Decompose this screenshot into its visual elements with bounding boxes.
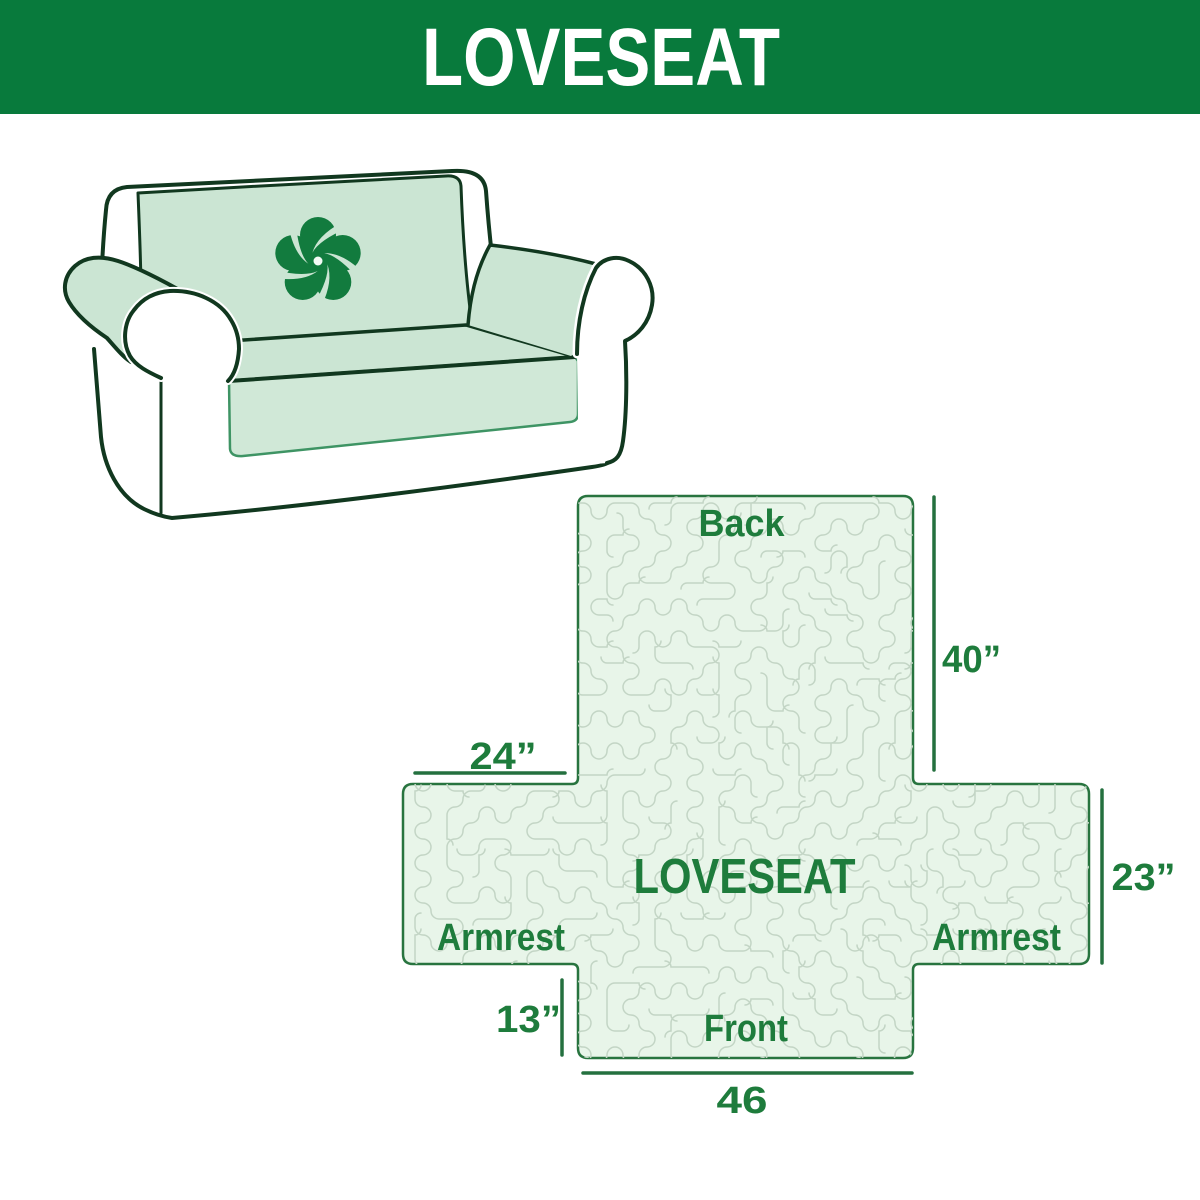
svg-text:LOVESEAT: LOVESEAT xyxy=(634,850,856,904)
svg-text:23”: 23” xyxy=(1112,857,1176,899)
svg-text:Armrest: Armrest xyxy=(437,917,565,959)
svg-text:Back: Back xyxy=(699,503,786,545)
svg-text:Armrest: Armrest xyxy=(932,917,1061,959)
svg-text:Front: Front xyxy=(704,1008,788,1050)
svg-text:46: 46 xyxy=(717,1080,768,1122)
svg-text:13”: 13” xyxy=(496,999,561,1041)
svg-text:LOVESEAT: LOVESEAT xyxy=(422,12,780,103)
svg-text:40”: 40” xyxy=(942,639,1001,681)
svg-text:24”: 24” xyxy=(470,736,537,778)
